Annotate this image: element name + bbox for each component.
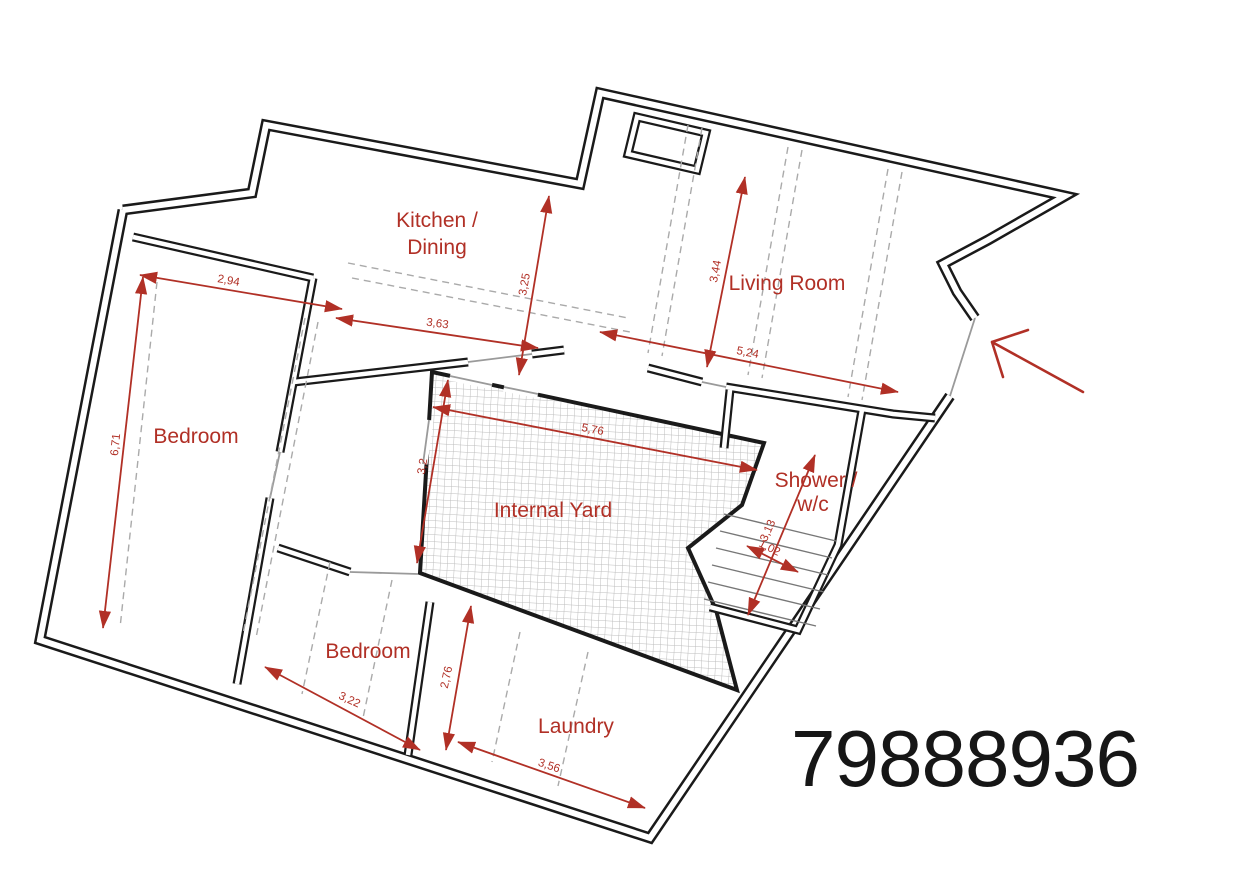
room-label-bedroom-left: Bedroom [153, 425, 238, 448]
room-label-shower-line2: w/c [796, 493, 829, 516]
dim-bedroom-left-width: 2,94 [216, 273, 241, 289]
bedroom-left-door-line [270, 452, 280, 498]
room-label-laundry: Laundry [538, 715, 614, 738]
room-label-bedroom-bottom: Bedroom [325, 640, 410, 663]
dim-kitchen-width: 3,63 [425, 317, 449, 332]
internal-yard-area [420, 372, 764, 690]
yard-hatch [420, 372, 764, 690]
entry-door-line [950, 318, 975, 396]
room-label-kitchen-line1: Kitchen / [396, 209, 478, 232]
dim-bedroom-bottom-depth: 2,76 [439, 665, 455, 689]
dim-living-width: 5,24 [735, 345, 760, 361]
room-label-kitchen-line2: Dining [407, 236, 467, 259]
living-door-line [702, 382, 726, 387]
dim-line-laundry-width [458, 742, 645, 808]
room-label-living: Living Room [729, 272, 846, 295]
entry-arrow-icon [992, 330, 1083, 392]
dim-living-depth: 3,44 [708, 259, 724, 284]
plan-number: 79888936 [791, 714, 1139, 803]
dim-line-living-width [600, 332, 898, 392]
dim-laundry-width: 3,56 [536, 757, 561, 776]
room-label-shower-line1: Shower / [775, 469, 858, 492]
floor-plan-page: 2,94 6,71 3,63 3,25 3,44 5,24 5,76 3,2 3… [0, 0, 1248, 891]
dim-bedroom-left-length: 6,71 [109, 433, 123, 457]
floor-plan-svg: 2,94 6,71 3,63 3,25 3,44 5,24 5,76 3,2 3… [0, 0, 1248, 891]
bedroom-bottom-door-line [350, 572, 418, 574]
room-label-yard: Internal Yard [494, 499, 612, 522]
dim-kitchen-depth: 3,25 [517, 272, 533, 296]
